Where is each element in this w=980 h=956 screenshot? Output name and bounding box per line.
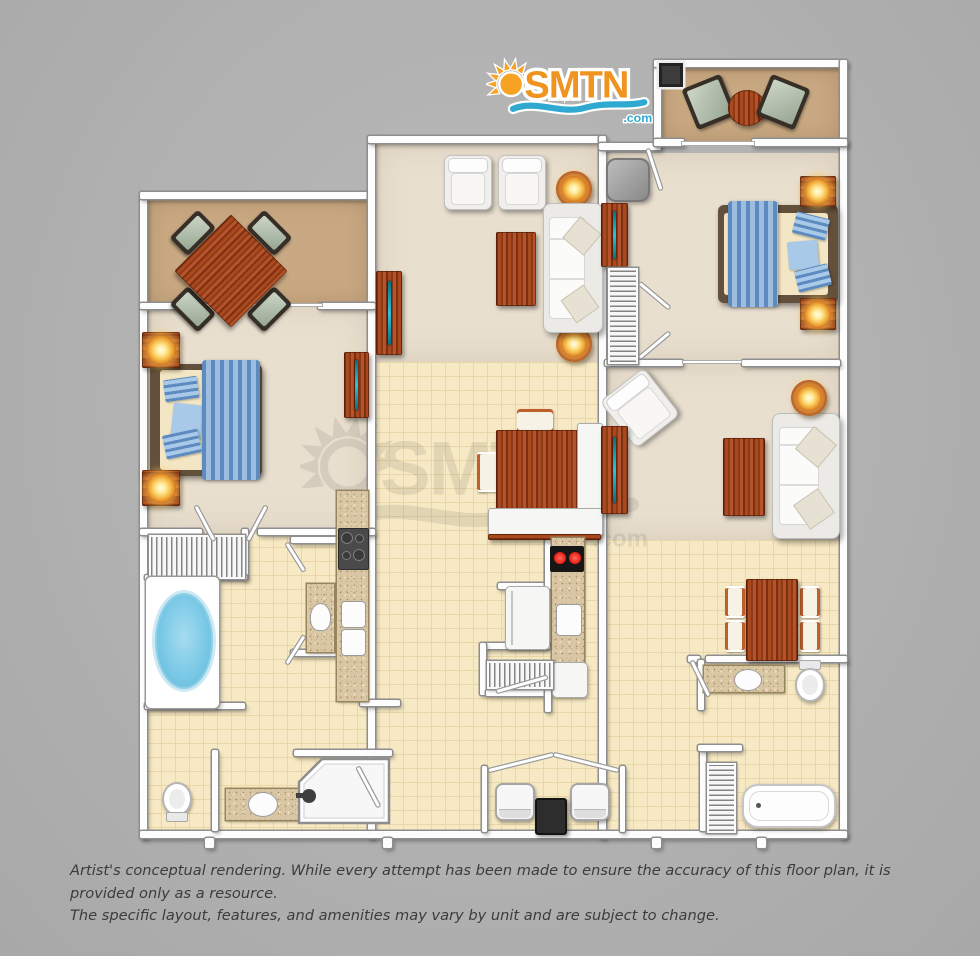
wall-laundry [620, 766, 625, 832]
dishwasher [552, 662, 588, 698]
logo-tld: .com [623, 111, 652, 125]
burner [355, 534, 364, 543]
burner [341, 532, 353, 544]
tv-console [376, 271, 402, 355]
dining-table [746, 579, 798, 661]
garden-tub [146, 577, 219, 708]
lamp-table [556, 171, 592, 207]
wall-segment [291, 537, 341, 543]
floor-plan-page: SMTN .com SMTN .com [0, 0, 980, 956]
toilet-bowl [795, 668, 825, 702]
wall-segment [368, 136, 606, 143]
bathtub [742, 784, 836, 828]
wall-segment [140, 192, 147, 838]
lamp [146, 335, 176, 365]
disclaimer-line-1: Artist's conceptual rendering. While eve… [70, 860, 918, 905]
sliding-door [682, 142, 754, 145]
electric-stove [550, 546, 584, 572]
dining-chair [725, 586, 745, 618]
disclaimer: Artist's conceptual rendering. While eve… [70, 860, 918, 928]
sink [310, 603, 331, 631]
wall-segment [752, 139, 847, 146]
wall-segment [368, 136, 375, 838]
toilet-tank [166, 812, 188, 822]
grill [659, 63, 683, 87]
coffee-table [723, 438, 765, 516]
toilet-bowl [162, 782, 192, 816]
wall-segment [654, 139, 684, 146]
kitchen-counter [337, 491, 368, 701]
water-heater [535, 798, 567, 835]
burner [353, 549, 365, 561]
wall-segment [742, 360, 840, 366]
lamp [561, 331, 587, 357]
toilet [795, 660, 825, 702]
wall-balcony [840, 60, 847, 146]
nightstand [800, 176, 836, 207]
gray-ottoman [606, 158, 650, 202]
wall-laundry [482, 766, 487, 832]
lamp [804, 301, 831, 328]
burner [342, 551, 351, 560]
smtn-logo: SMTN .com [486, 48, 658, 126]
louvered-closet [707, 763, 736, 833]
wall-segment [840, 139, 847, 838]
sofa [543, 203, 603, 333]
dining-chair [800, 620, 820, 652]
wall-segment [140, 831, 847, 838]
refrigerator [505, 586, 550, 650]
lamp-table [791, 380, 827, 416]
shower [296, 756, 392, 826]
kitchen-sink [341, 601, 366, 628]
wall-stub [205, 838, 214, 848]
louvered-closet [608, 268, 638, 364]
dryer [570, 783, 610, 821]
vanity [307, 584, 334, 652]
nightstand [142, 332, 180, 368]
bar-counter [488, 508, 603, 536]
tv-console [601, 426, 628, 514]
sink [734, 669, 762, 691]
wall-segment [140, 192, 372, 199]
blanket [202, 360, 260, 480]
wall-stub [757, 838, 766, 848]
kitchen-sink [341, 629, 366, 656]
sofa [772, 413, 840, 539]
wall-stub [383, 838, 392, 848]
burner [554, 552, 566, 564]
tv-console [601, 203, 628, 267]
lamp [804, 178, 831, 205]
vanity [704, 666, 784, 692]
armchair [444, 155, 492, 210]
nightstand [142, 470, 180, 506]
wall-segment [698, 745, 742, 751]
burner [569, 552, 581, 564]
tub-drain [756, 803, 761, 808]
wall-segment [599, 143, 661, 150]
tub-water [152, 590, 216, 692]
blanket [728, 201, 778, 307]
wall-segment [212, 750, 218, 831]
cased-opening [683, 361, 741, 363]
wall-segment [480, 643, 486, 695]
dining-chair [725, 620, 745, 652]
bar-edge [488, 534, 601, 540]
toilet [162, 782, 192, 824]
dining-chair [800, 586, 820, 618]
sink [248, 792, 278, 817]
wall-stub [652, 838, 661, 848]
lamp [561, 176, 587, 202]
armchair [498, 155, 546, 210]
lamp [146, 473, 176, 503]
coffee-table [496, 232, 536, 306]
bed-left [150, 364, 262, 476]
pillow [163, 376, 200, 403]
disclaimer-line-2: The specific layout, features, and ameni… [70, 905, 918, 928]
washer [495, 783, 535, 821]
dining-table [496, 430, 590, 518]
kitchen-sink [556, 604, 582, 636]
tv-console [344, 352, 369, 418]
bed-right [718, 205, 838, 303]
gas-cooktop [338, 528, 369, 570]
wall-segment [545, 690, 551, 712]
wall-segment [700, 745, 706, 831]
nightstand [800, 298, 836, 330]
wall-segment [486, 690, 550, 696]
vanity [226, 789, 298, 820]
louvered-closet [149, 535, 245, 579]
lamp [796, 385, 822, 411]
wall-segment [318, 303, 375, 309]
